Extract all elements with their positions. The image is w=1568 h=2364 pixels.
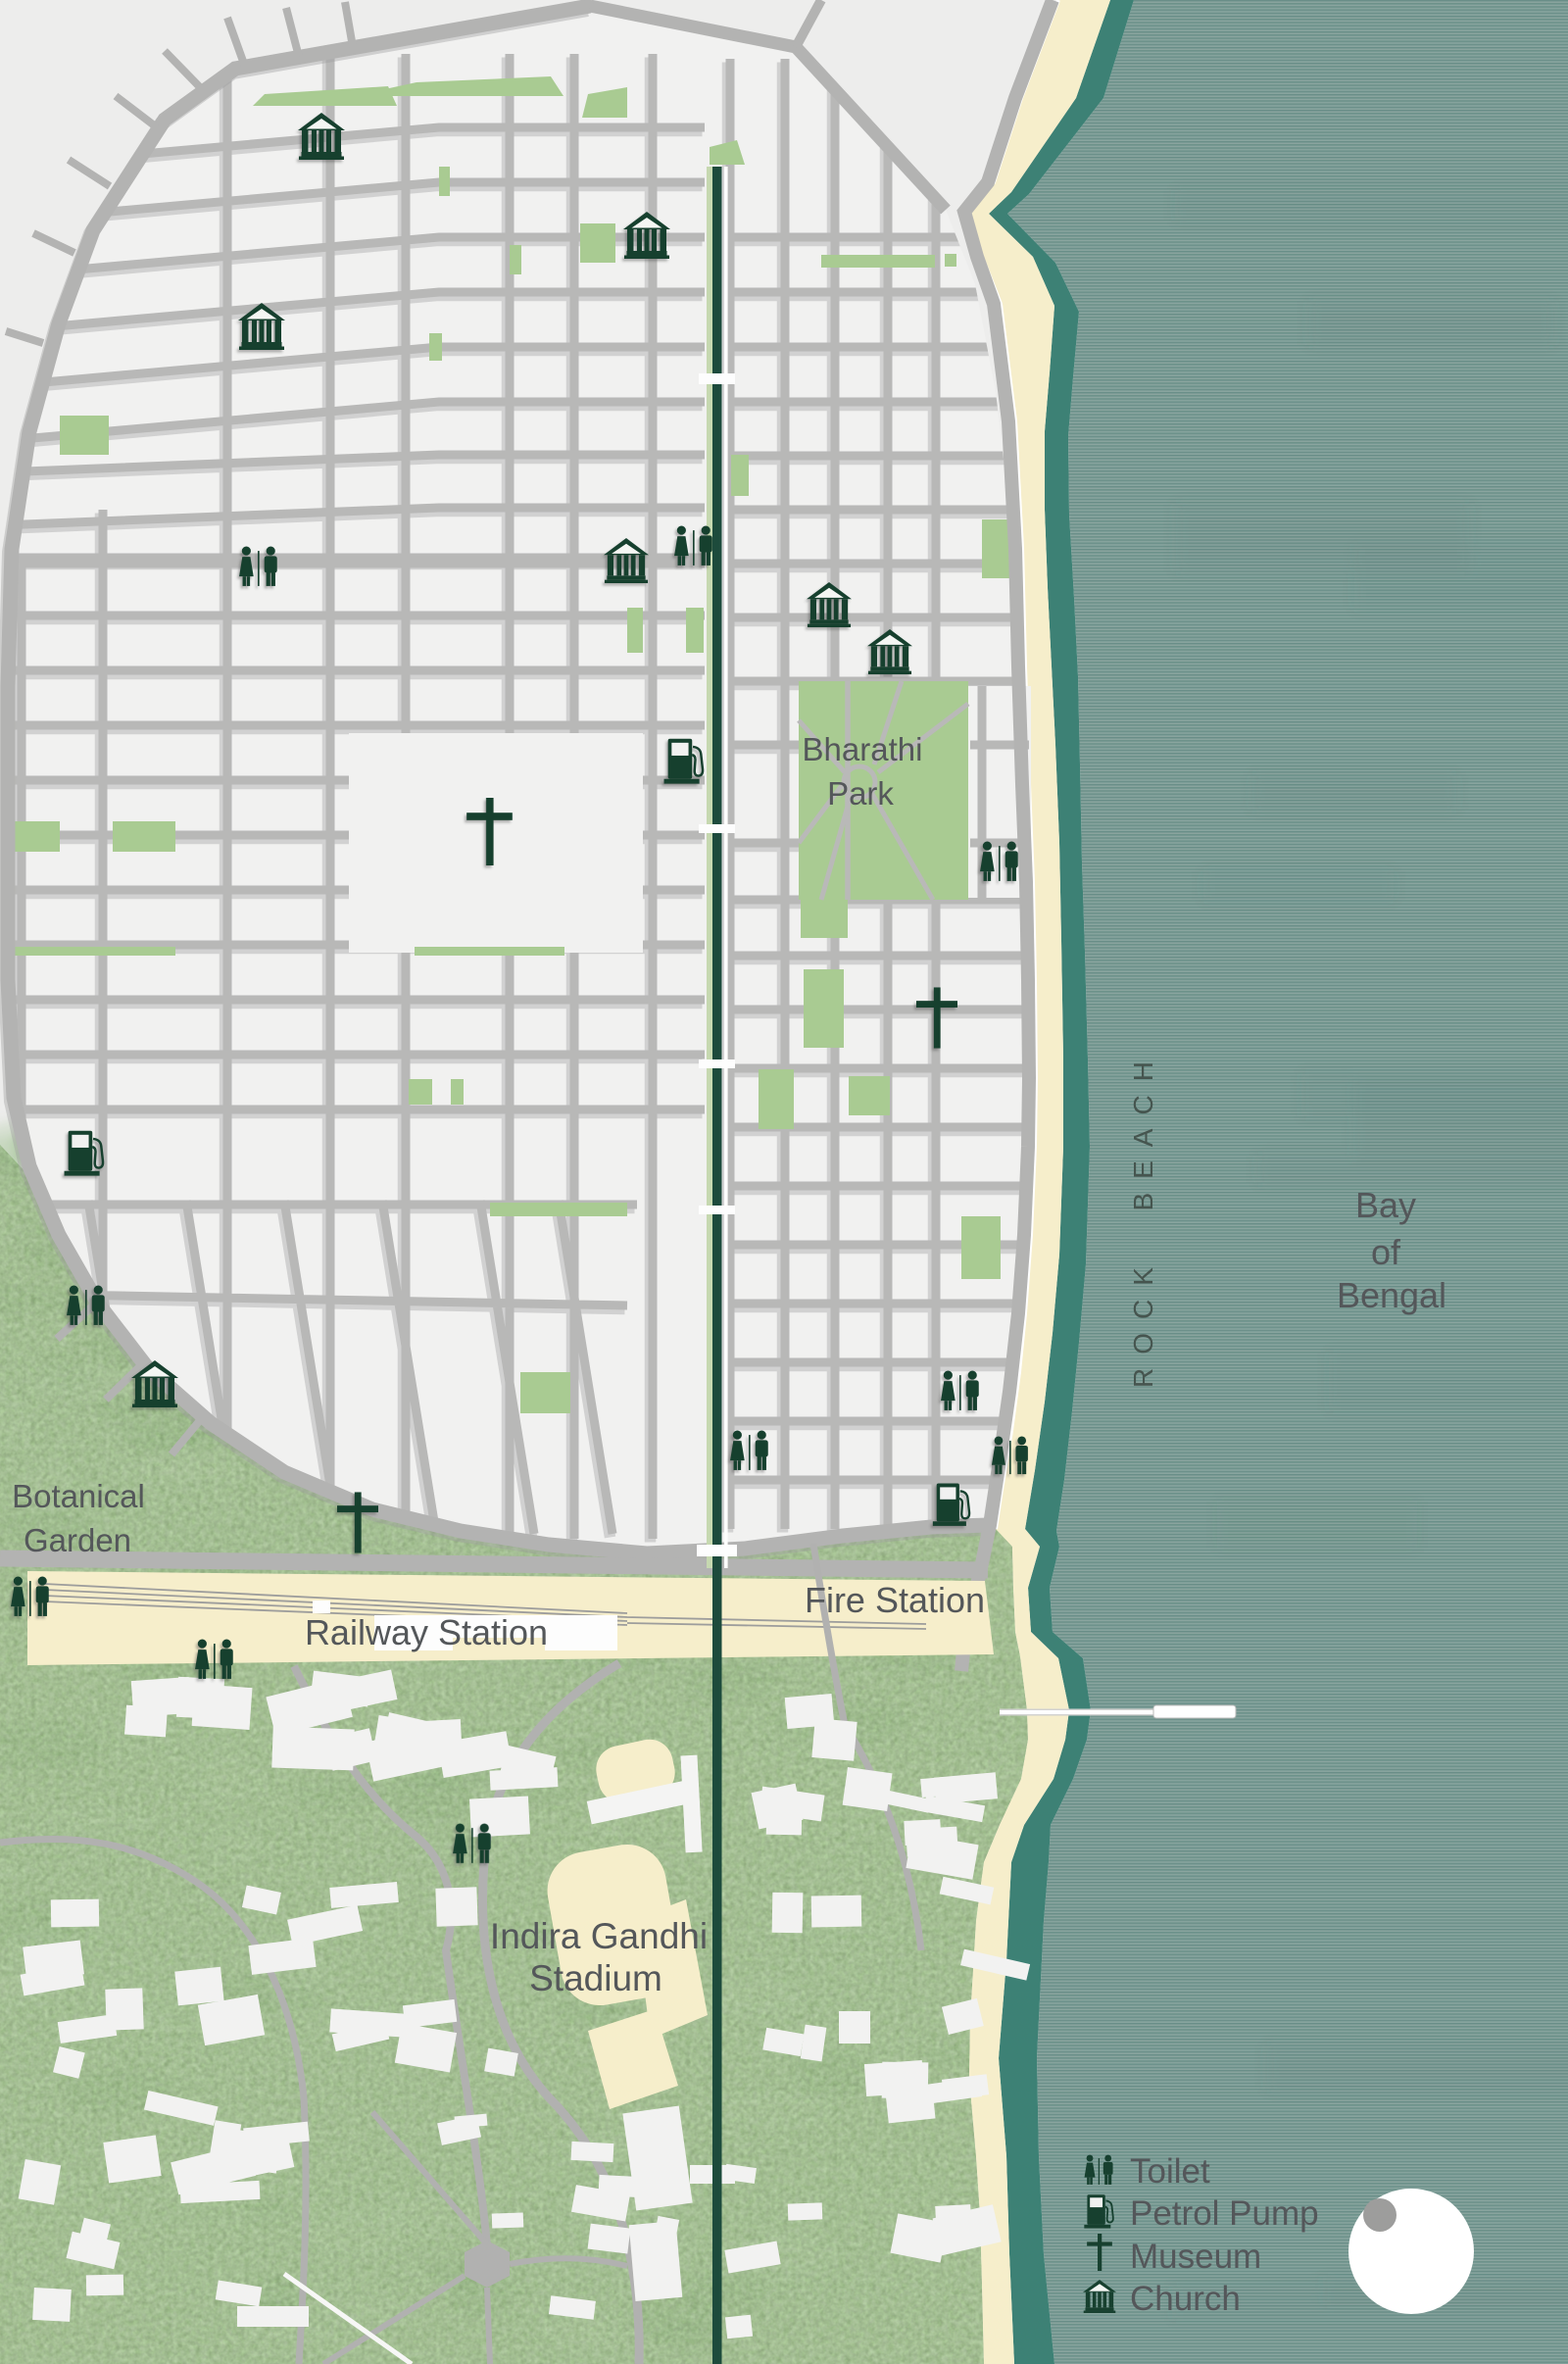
svg-text:Railway Station: Railway Station — [305, 1612, 548, 1652]
svg-text:ROCK BEACH: ROCK BEACH — [1128, 1048, 1158, 1388]
svg-text:Botanical: Botanical — [12, 1478, 145, 1514]
svg-text:Museum: Museum — [1130, 2238, 1261, 2276]
svg-text:Bengal: Bengal — [1337, 1275, 1446, 1315]
svg-text:Bharathi: Bharathi — [803, 731, 923, 767]
svg-text:Garden: Garden — [24, 1522, 131, 1558]
svg-text:Indira Gandhi: Indira Gandhi — [490, 1916, 708, 1956]
svg-text:of: of — [1371, 1232, 1401, 1272]
svg-text:Fire Station: Fire Station — [805, 1580, 985, 1620]
svg-text:Stadium: Stadium — [529, 1958, 662, 1998]
svg-text:Petrol Pump: Petrol Pump — [1130, 2194, 1319, 2233]
svg-text:Bay: Bay — [1355, 1185, 1416, 1225]
svg-text:Park: Park — [827, 775, 894, 812]
svg-text:Church: Church — [1130, 2280, 1241, 2318]
svg-text:Toilet: Toilet — [1130, 2152, 1210, 2191]
